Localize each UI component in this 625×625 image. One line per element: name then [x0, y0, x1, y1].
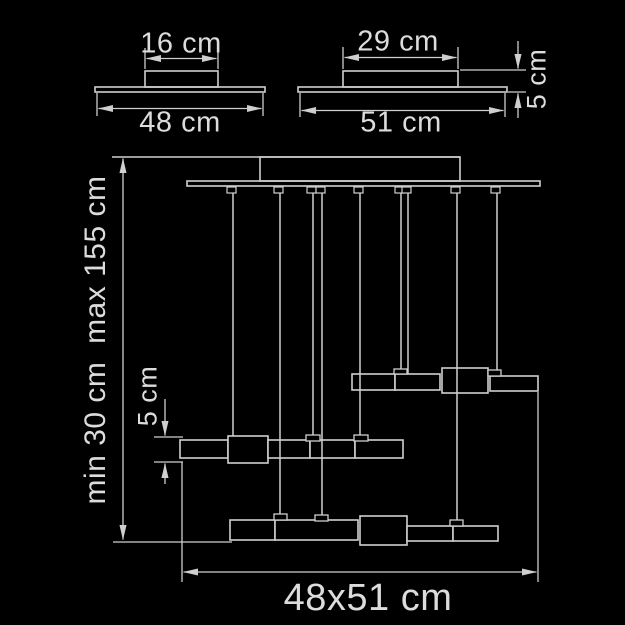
- upper-bar-connector-box: [442, 368, 488, 393]
- label-assembly-height-range: min 30 cm max 155 cm: [81, 176, 111, 505]
- middle-bar-connector-box: [228, 436, 268, 463]
- suspension-wires: [233, 186, 497, 521]
- assembly-view: [112, 157, 540, 582]
- label-assembly-bar-height: 5 cm: [135, 366, 162, 427]
- lower-bar-connector-box: [360, 516, 407, 545]
- dimension-diagram: 16 cm 48 cm 29 cm 51 cm 5 cm min 30 cm m…: [0, 0, 625, 625]
- middle-light-bar: [180, 436, 403, 463]
- small-fixture-canopy-box: [145, 71, 218, 87]
- label-assembly-footprint: 48x51 cm: [284, 579, 453, 617]
- label-small-view-top-width: 16 cm: [140, 30, 221, 59]
- large-fixture-canopy-box: [343, 71, 458, 87]
- label-large-view-base-width: 51 cm: [360, 109, 441, 138]
- wire-hooks: [227, 187, 500, 193]
- label-large-view-top-width: 29 cm: [357, 28, 438, 57]
- upper-light-bar: [352, 368, 538, 393]
- label-large-view-height: 5 cm: [524, 49, 551, 110]
- canopy-plate: [187, 181, 540, 186]
- label-small-view-base-width: 48 cm: [139, 109, 220, 138]
- canopy-box: [260, 157, 460, 181]
